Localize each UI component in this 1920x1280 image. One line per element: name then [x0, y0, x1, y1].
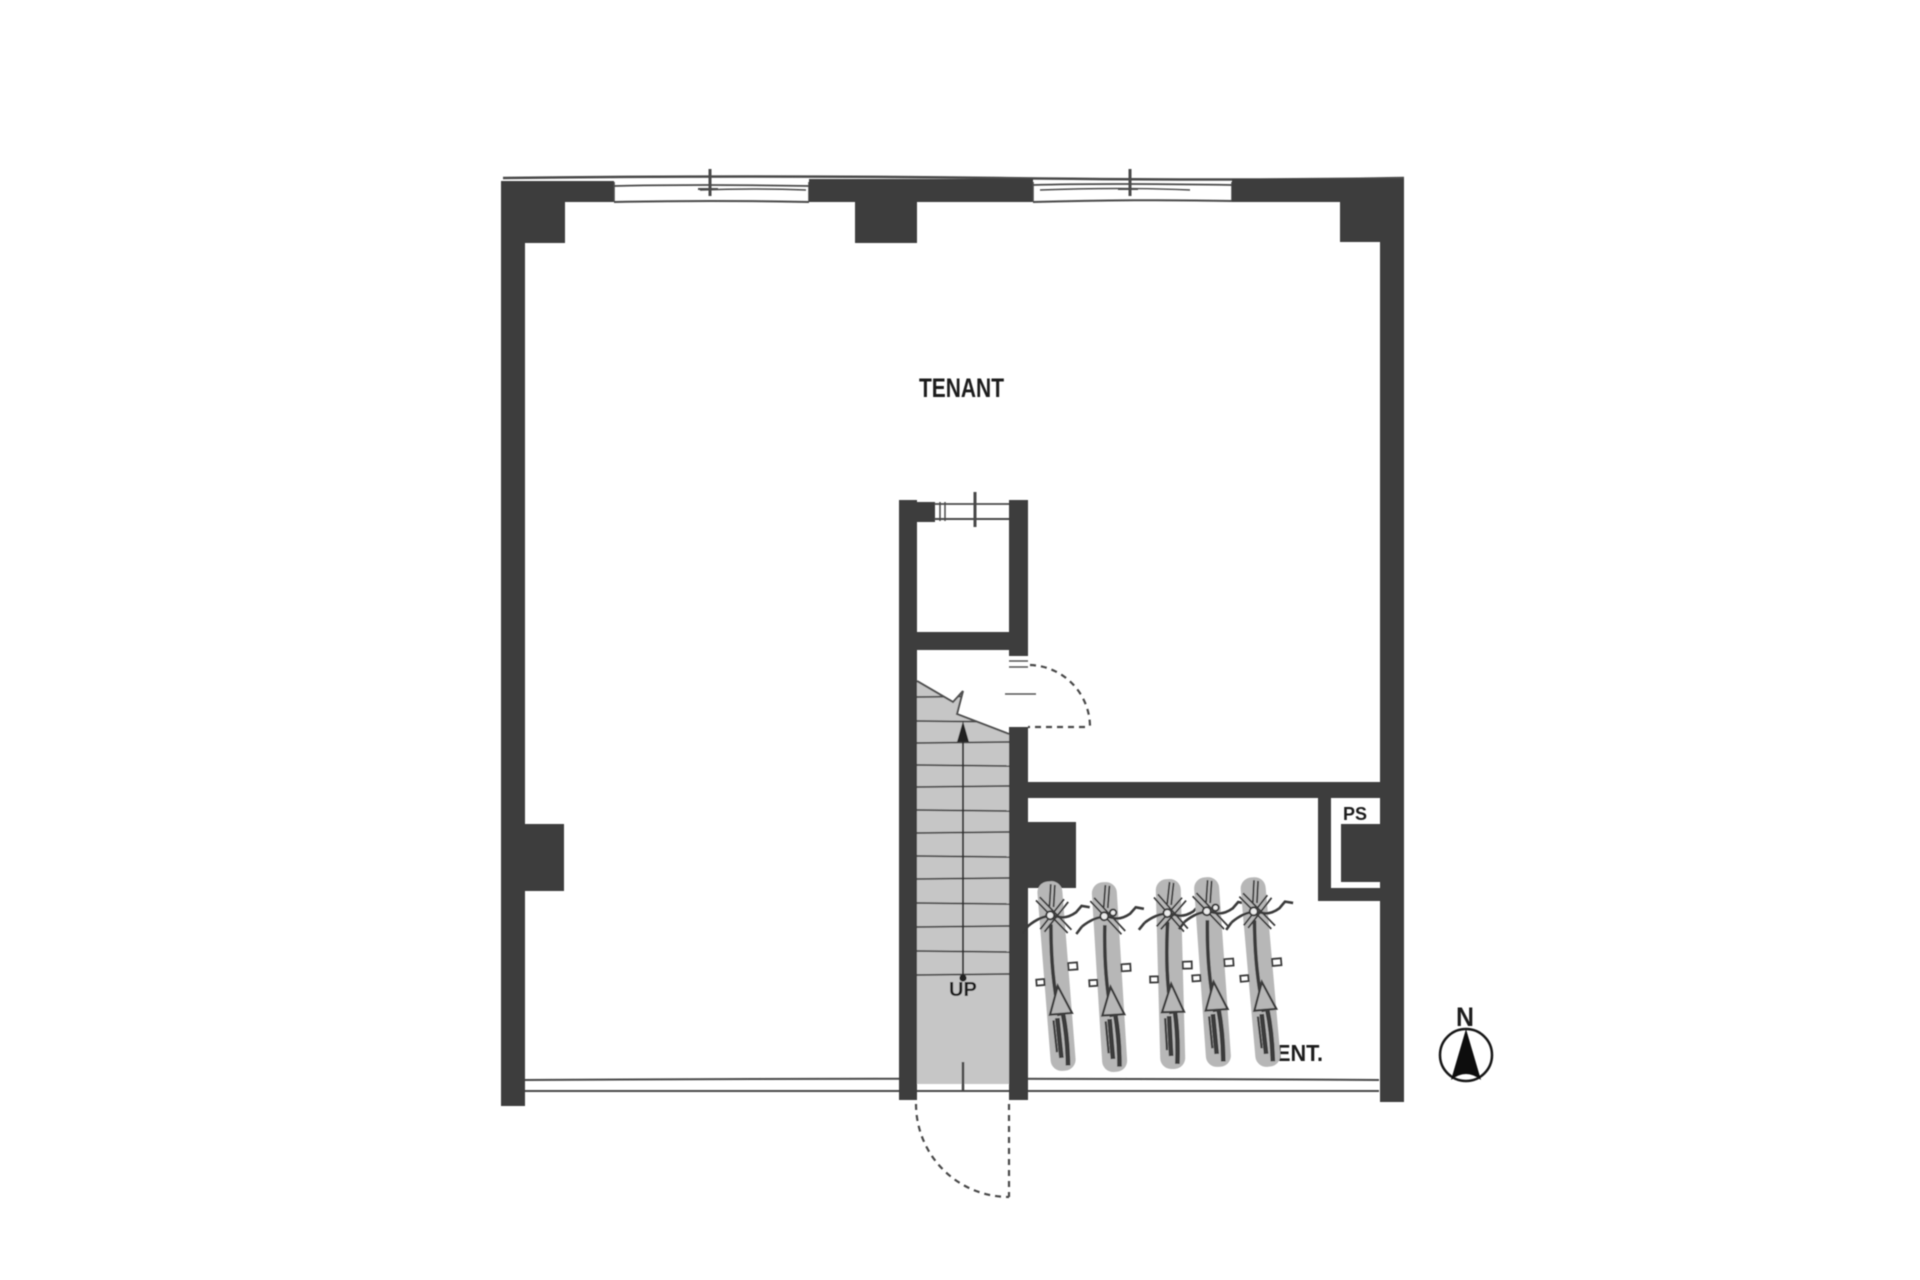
svg-text:TENANT: TENANT [919, 373, 1004, 403]
svg-text:N: N [1456, 1002, 1474, 1032]
svg-text:UP: UP [949, 979, 977, 1001]
svg-text:PS: PS [1343, 804, 1367, 824]
svg-text:ENT.: ENT. [1276, 1040, 1323, 1066]
